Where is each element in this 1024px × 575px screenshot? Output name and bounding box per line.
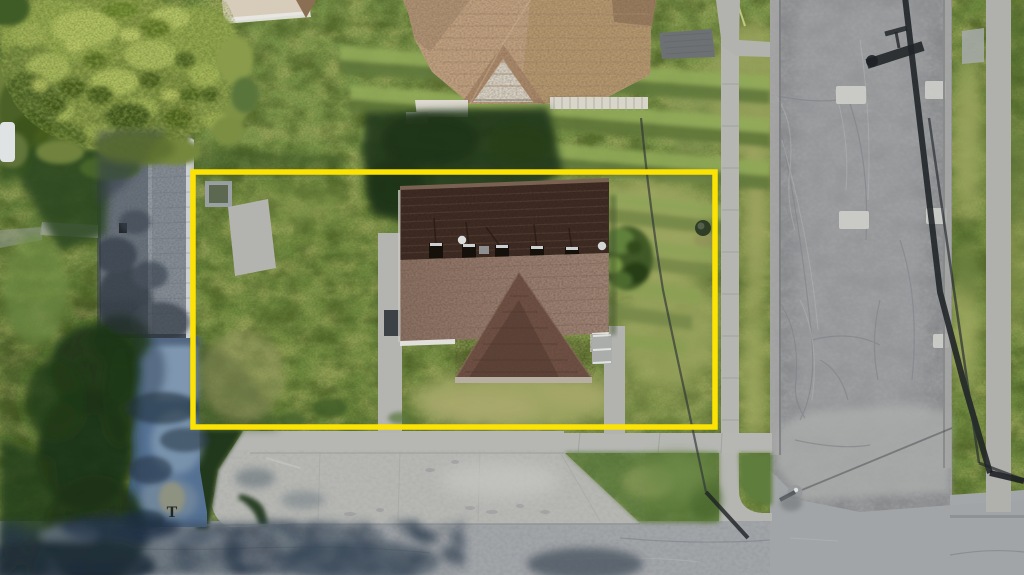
svg-text:T: T bbox=[167, 504, 178, 521]
